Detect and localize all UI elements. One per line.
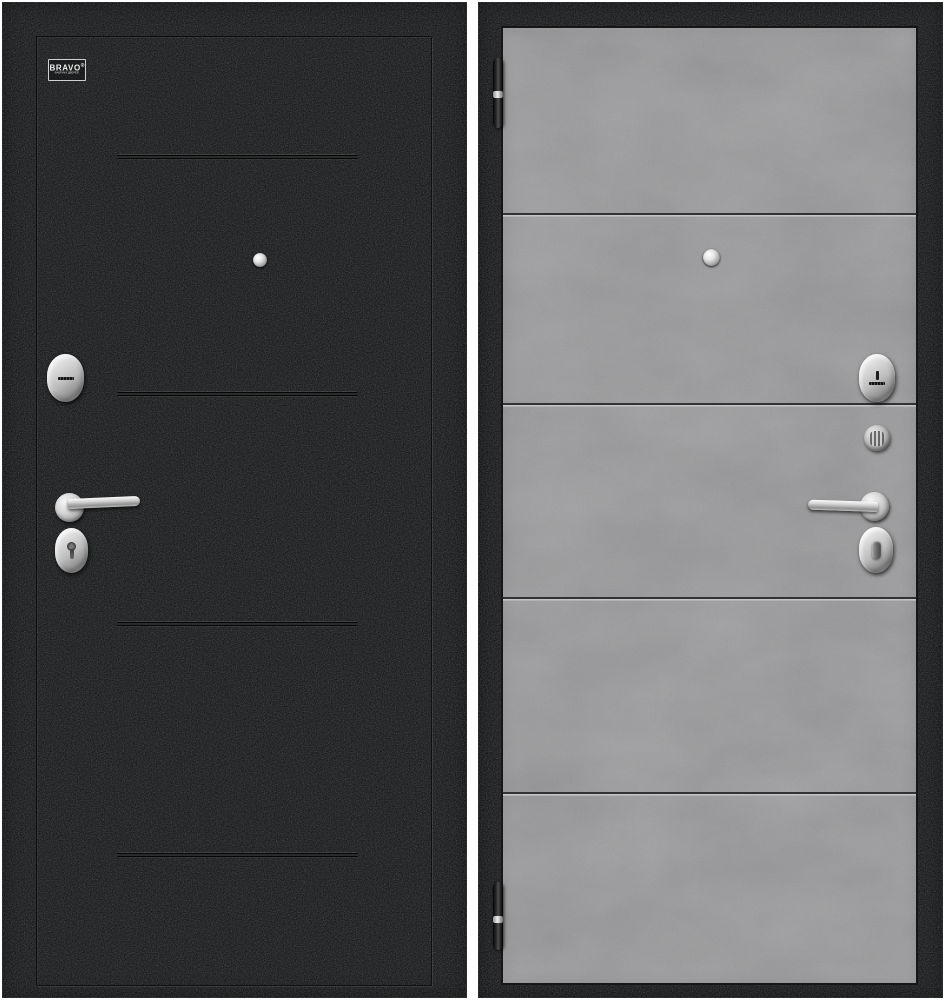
cylinder-escutcheon [47,354,84,402]
hinge-band [493,916,503,923]
brand-logo: BRAVO® ФАБРИКА ДВЕРЕЙ [48,59,86,81]
keyhole-escutcheon [55,528,88,573]
key-slot-vertical [876,371,879,380]
panel-groove [503,597,916,601]
hinge-band [493,91,503,98]
groove-line [117,852,358,858]
product-image: BRAVO® ФАБРИКА ДВЕРЕЙ [0,0,945,1000]
hinge-bottom [493,882,503,950]
brand-logo-tagline: ФАБРИКА ДВЕРЕЙ [55,72,79,74]
panel-groove [503,792,916,796]
concrete-panel [503,28,916,983]
peephole [703,249,720,266]
door-exterior-black: BRAVO® ФАБРИКА ДВЕРЕЙ [2,2,467,998]
cylinder-escutcheon [859,354,895,402]
door-inner-panel [37,37,432,986]
panel-groove [503,403,916,407]
panel-groove [503,213,916,217]
hinge-top [493,58,503,128]
lever-handle [808,500,878,512]
groove-line [117,154,358,160]
door-interior-concrete [478,2,943,998]
groove-line [117,391,358,397]
thumbturn-escutcheon [859,527,893,573]
thumbturn-ridges [870,431,884,446]
key-slot [869,382,885,385]
thumbturn-tab [872,541,881,559]
registered-mark: ® [81,63,85,69]
thumbturn-knob [864,425,890,451]
key-slot [58,377,74,380]
peephole [253,253,267,267]
keyhole-stem [70,549,74,559]
groove-line [117,621,358,627]
